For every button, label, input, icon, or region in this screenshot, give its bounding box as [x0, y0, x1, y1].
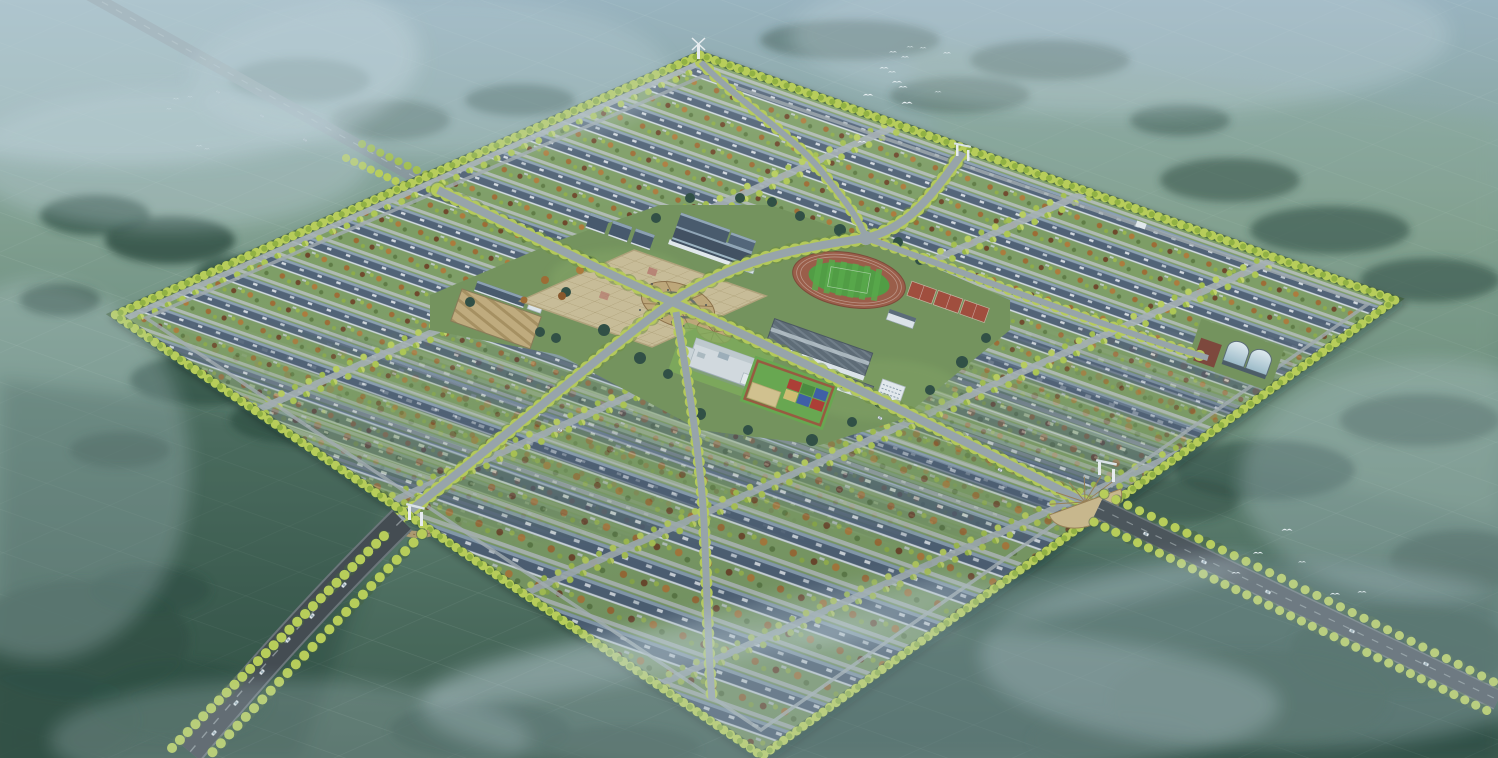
scene-canvas [0, 0, 1498, 758]
aerial-rendering [0, 0, 1498, 758]
fog-overlay [0, 0, 1498, 758]
